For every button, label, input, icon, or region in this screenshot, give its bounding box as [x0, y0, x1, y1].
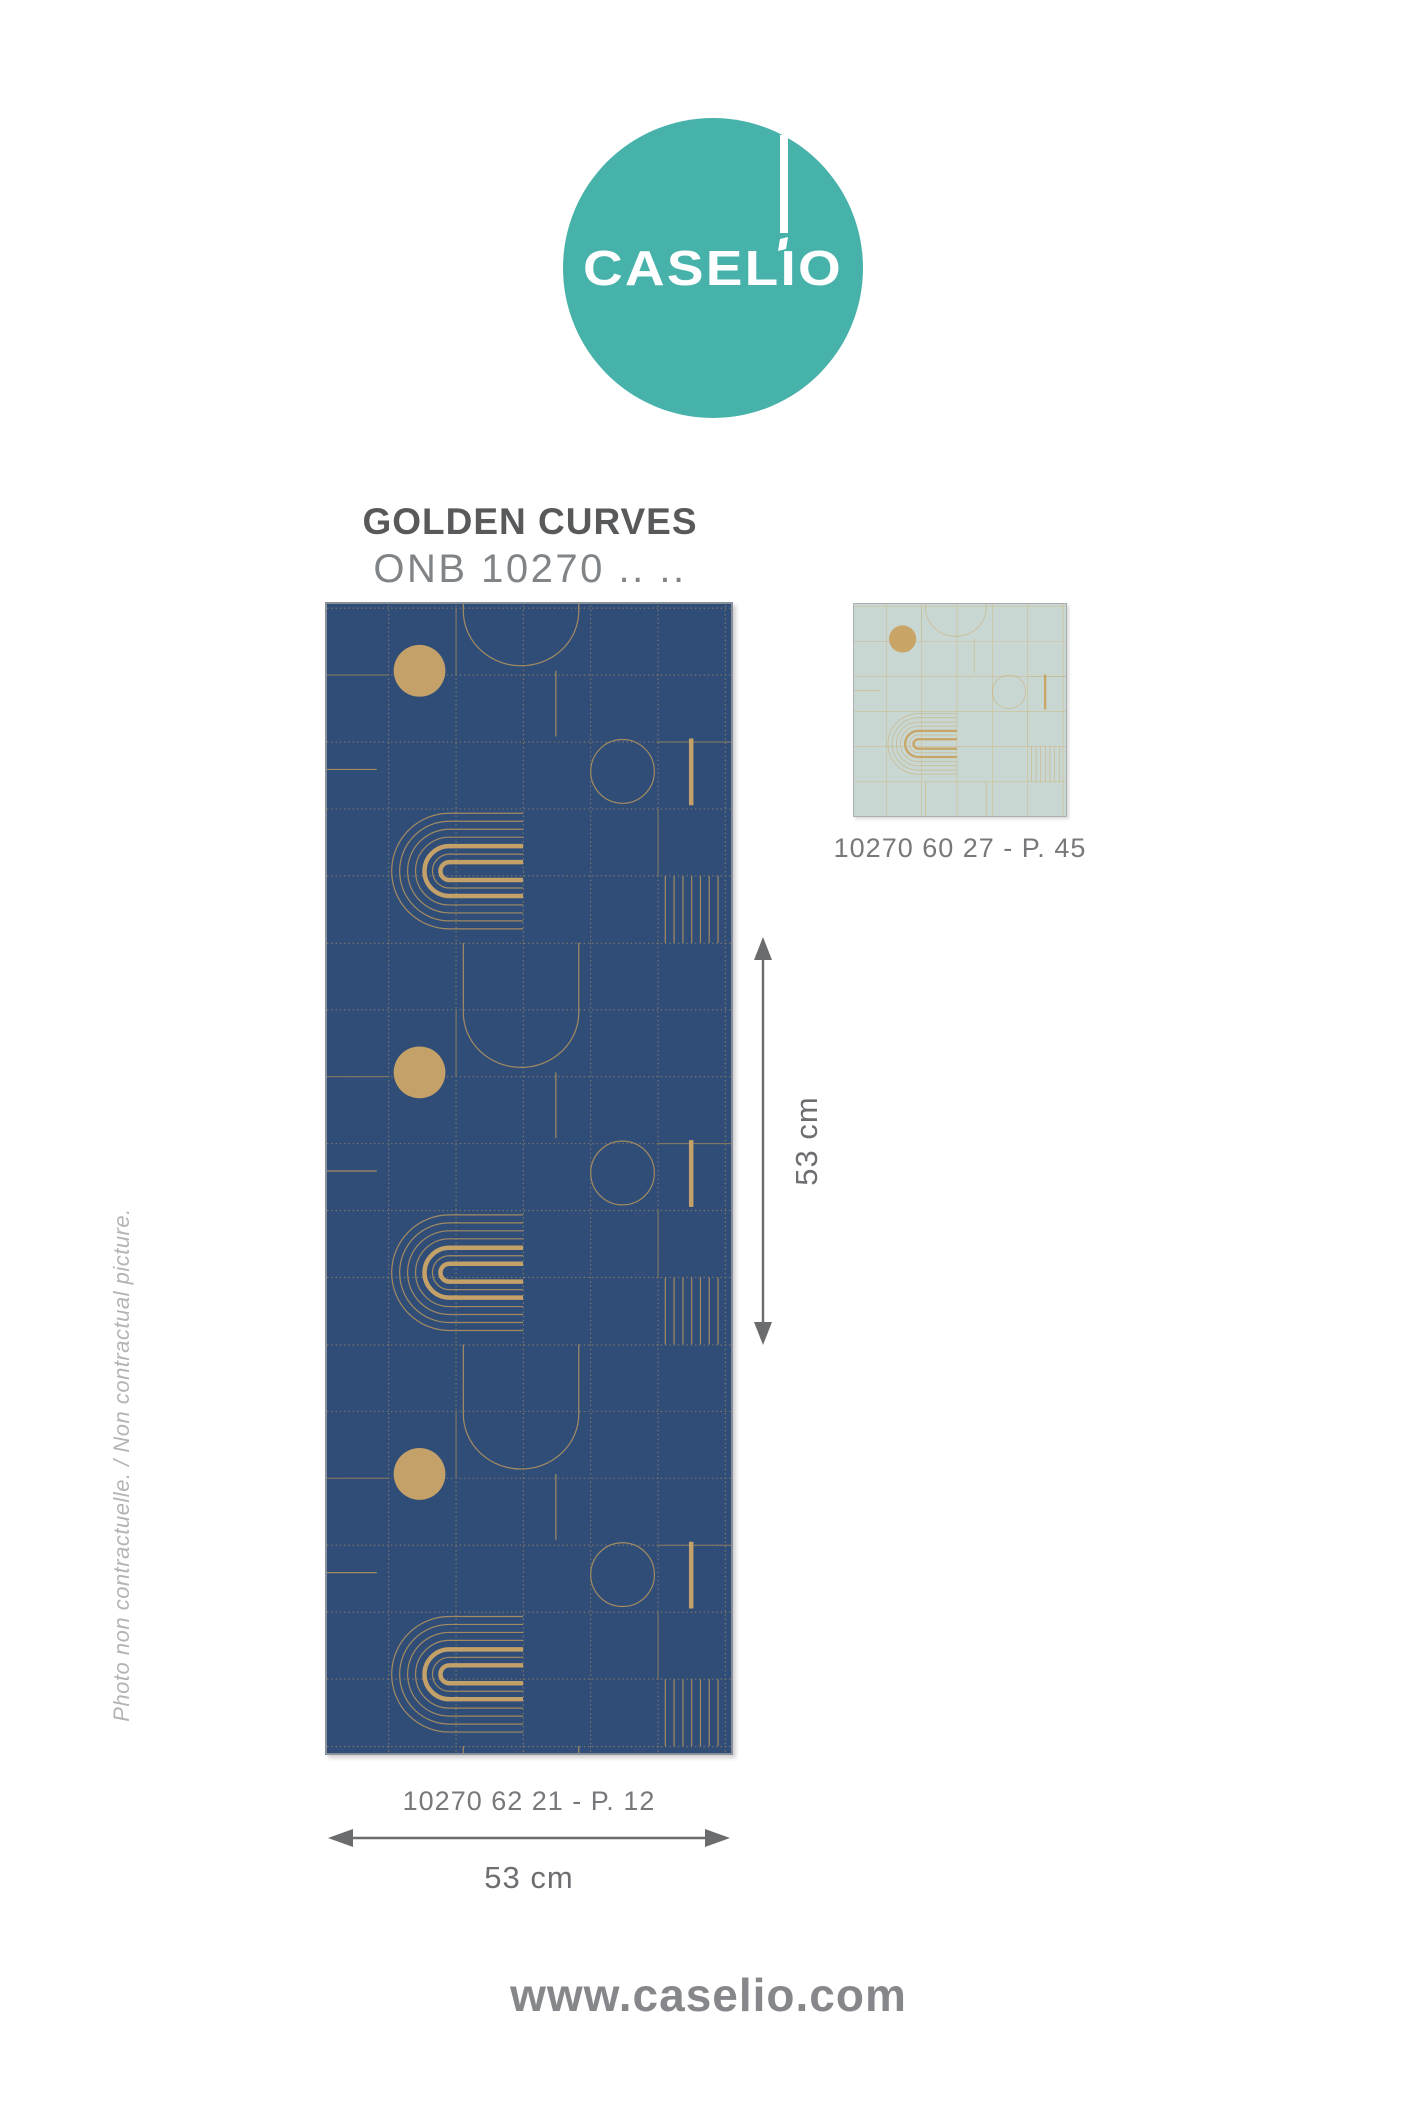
logo-bar-mark	[780, 135, 788, 233]
height-dimension-label: 53 cm	[789, 1096, 824, 1185]
arrow-left-icon	[328, 1829, 353, 1847]
horizontal-dimension-arrow	[324, 1819, 734, 1859]
main-swatch-reference: 10270 62 21 - P. 12	[325, 1786, 733, 1817]
product-sheet-page: CASELIO GOLDEN CURVES ONB 10270 .. ..	[0, 0, 1417, 2126]
product-reference: ONB 10270 .. ..	[325, 549, 735, 589]
alt-colorway-swatch	[853, 603, 1067, 817]
logo-brand-text: CASELIO	[583, 242, 843, 296]
arrow-up-icon	[754, 937, 772, 960]
arrow-down-icon	[754, 1322, 772, 1345]
product-name: GOLDEN CURVES	[325, 503, 735, 540]
website-url: www.caselio.com	[0, 1968, 1417, 2022]
non-contractual-note: Photo non contractuelle. / Non contractu…	[109, 1208, 135, 1721]
width-dimension-label: 53 cm	[325, 1860, 733, 1896]
vertical-dimension-arrow: 53 cm	[745, 927, 865, 1353]
main-wallpaper-swatch	[325, 602, 733, 1755]
alt-swatch-reference: 10270 60 27 - P. 45	[820, 833, 1100, 864]
brand-logo: CASELIO	[563, 118, 863, 418]
arrow-right-icon	[705, 1829, 730, 1847]
